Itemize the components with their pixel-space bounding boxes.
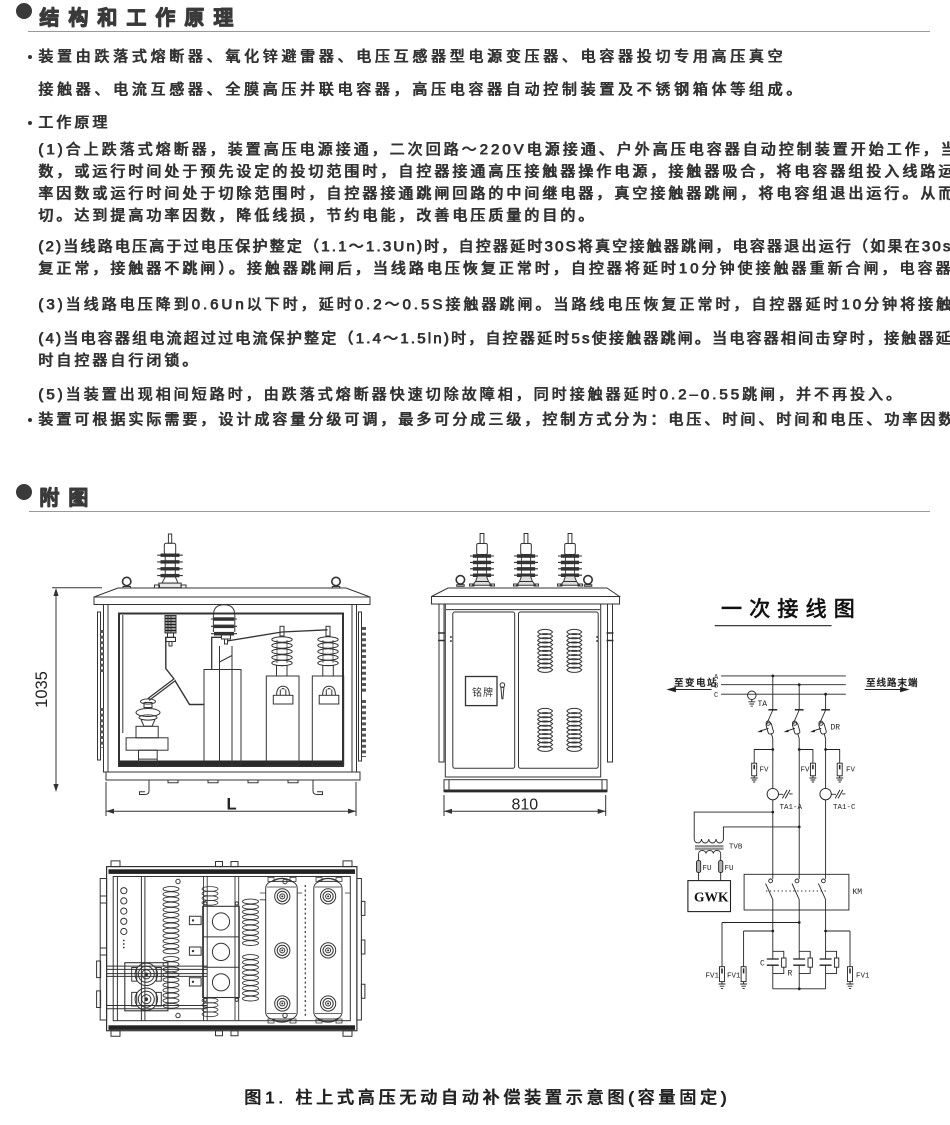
svg-text:KM: KM: [853, 888, 863, 897]
svg-text:FU: FU: [703, 865, 712, 873]
svg-text:1035: 1035: [33, 671, 51, 708]
svg-text:DR: DR: [831, 724, 841, 733]
svg-text:FU: FU: [725, 865, 734, 873]
svg-text:FV1: FV1: [706, 973, 720, 981]
svg-text:至变电站: 至变电站: [674, 677, 718, 689]
svg-text:FV1: FV1: [727, 973, 741, 981]
svg-text:TVB: TVB: [729, 844, 743, 852]
svg-text:铭牌: 铭牌: [472, 686, 494, 699]
svg-text:一次接线图: 一次接线图: [721, 598, 862, 621]
svg-text:GWK: GWK: [694, 890, 729, 905]
svg-text:C: C: [760, 960, 765, 969]
svg-text:TA1-C: TA1-C: [833, 804, 856, 812]
svg-text:810: 810: [511, 797, 538, 814]
svg-text:L: L: [226, 796, 236, 814]
svg-text:FV: FV: [846, 767, 856, 775]
svg-text:至线路末端: 至线路末端: [866, 677, 919, 689]
svg-text:C: C: [714, 692, 718, 700]
svg-text:TA: TA: [758, 700, 768, 709]
svg-text:FV: FV: [801, 767, 811, 775]
svg-text:FV1: FV1: [856, 973, 870, 981]
svg-text:R: R: [788, 970, 793, 979]
svg-text:FV: FV: [760, 767, 770, 775]
